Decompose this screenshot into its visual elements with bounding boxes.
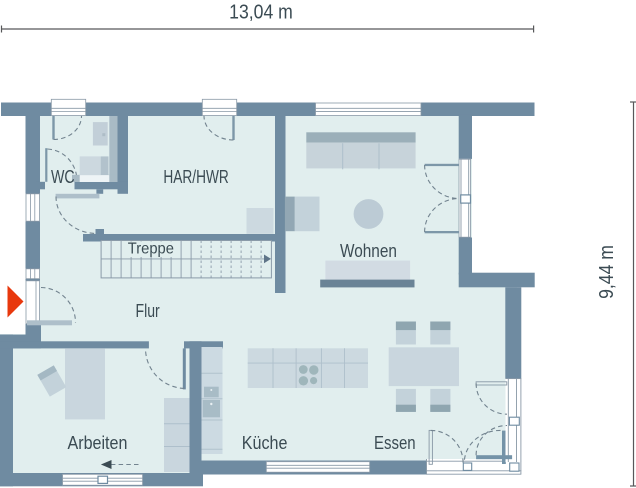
svg-text:Arbeiten: Arbeiten [68, 432, 128, 453]
svg-text:WC: WC [51, 167, 75, 187]
svg-text:Küche: Küche [242, 432, 288, 453]
svg-text:Essen: Essen [374, 432, 416, 453]
svg-text:9,44 m: 9,44 m [596, 245, 619, 299]
svg-text:HAR/HWR: HAR/HWR [163, 167, 228, 187]
svg-text:Flur: Flur [136, 301, 161, 321]
svg-text:13,04 m: 13,04 m [229, 1, 293, 24]
svg-text:Wohnen: Wohnen [340, 240, 397, 261]
svg-text:Treppe: Treppe [128, 240, 174, 257]
